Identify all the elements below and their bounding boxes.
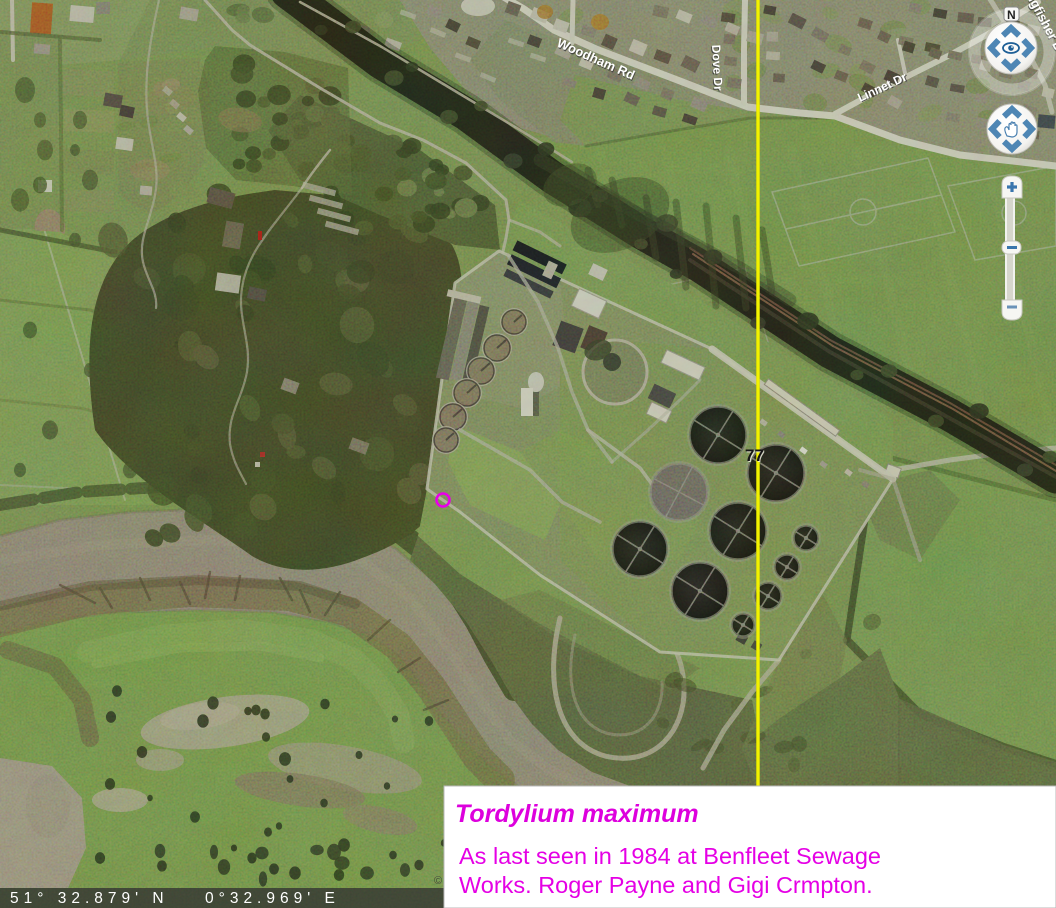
svg-text:Dove Dr: Dove Dr (709, 44, 725, 91)
svg-text:77: 77 (745, 446, 764, 465)
svg-text:N: N (1007, 8, 1016, 22)
svg-text:As last seen in 1984 at Benfle: As last seen in 1984 at Benfleet Sewage (459, 843, 881, 869)
svg-text:Works. Roger Payne and Gigi Cr: Works. Roger Payne and Gigi Crmpton. (459, 872, 873, 898)
svg-text:51° 32.879' N: 51° 32.879' N (10, 890, 169, 907)
svg-text:Tordylium maximum: Tordylium maximum (455, 800, 699, 828)
svg-text:©: © (434, 875, 442, 887)
svg-text:0°32.969' E: 0°32.969' E (205, 890, 340, 907)
